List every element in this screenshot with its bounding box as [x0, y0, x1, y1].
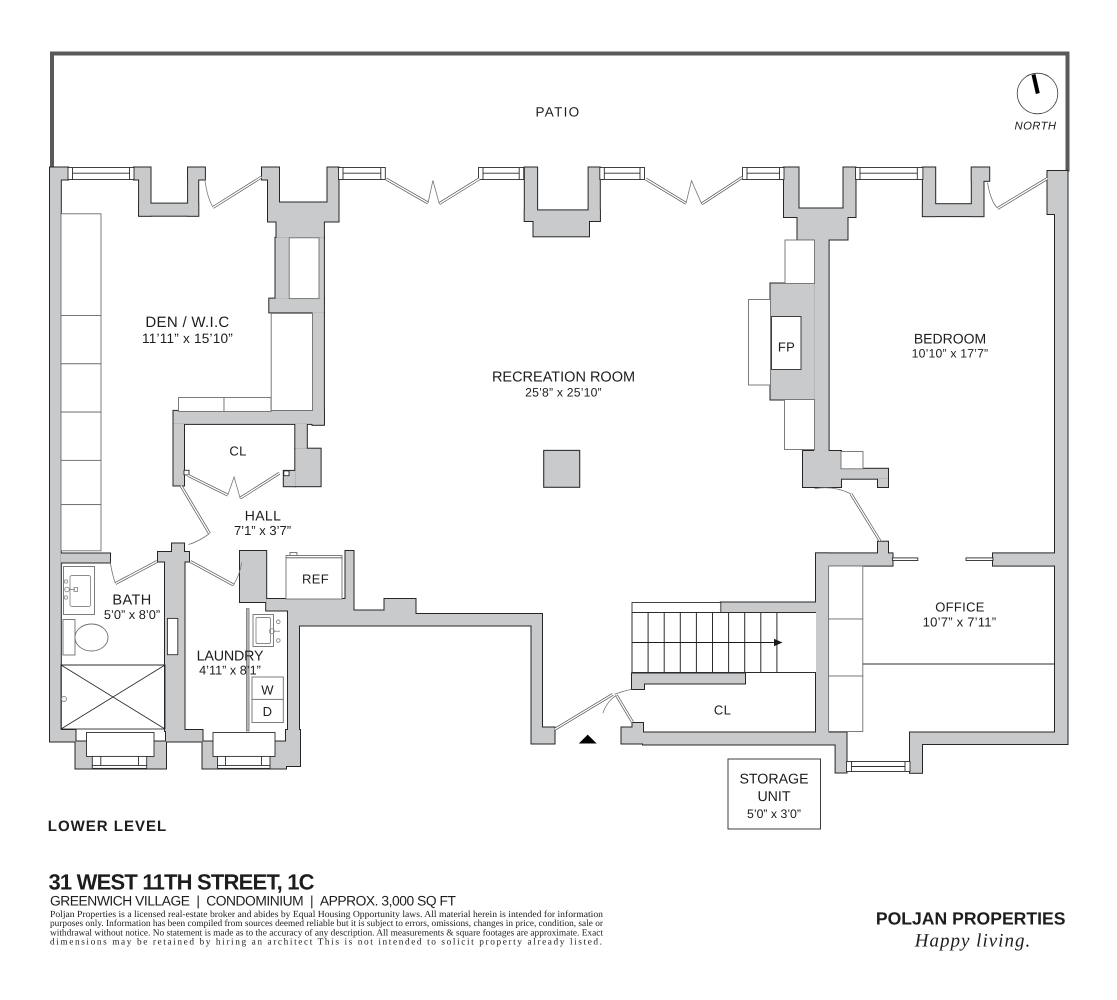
svg-text:BEDROOM: BEDROOM — [914, 331, 986, 347]
svg-text:STORAGE: STORAGE — [739, 772, 808, 788]
svg-text:5’0” x 8’0”: 5’0” x 8’0” — [104, 607, 160, 622]
svg-text:W: W — [261, 683, 274, 698]
svg-text:10’10” x 17’7”: 10’10” x 17’7” — [912, 347, 989, 361]
svg-text:Happy living.: Happy living. — [914, 931, 1031, 952]
svg-text:OFFICE: OFFICE — [935, 600, 984, 615]
svg-text:5’0” x 3’0”: 5’0” x 3’0” — [747, 807, 801, 821]
svg-text:POLJAN PROPERTIES: POLJAN PROPERTIES — [876, 909, 1066, 929]
svg-text:dimensions may be retained by: dimensions may be retained by hiring an … — [50, 938, 602, 948]
svg-text:10’7” x 7’11”: 10’7” x 7’11” — [923, 615, 997, 630]
svg-text:LOWER LEVEL: LOWER LEVEL — [48, 818, 167, 835]
svg-text:DEN / W.I.C: DEN / W.I.C — [145, 314, 229, 331]
svg-text:4’11” x 8’1”: 4’11” x 8’1” — [199, 664, 261, 678]
svg-text:FP: FP — [778, 340, 795, 355]
svg-text:D: D — [263, 704, 273, 719]
svg-text:REF: REF — [302, 572, 329, 587]
svg-text:HALL: HALL — [245, 508, 282, 524]
svg-text:11’11” x 15’10”: 11’11” x 15’10” — [142, 331, 233, 346]
svg-text:PATIO: PATIO — [535, 105, 580, 120]
svg-text:RECREATION ROOM: RECREATION ROOM — [492, 370, 635, 386]
svg-text:LAUNDRY: LAUNDRY — [197, 649, 264, 665]
svg-text:NORTH: NORTH — [1015, 121, 1057, 133]
svg-text:GREENWICH VILLAGE | CONDOMIN: GREENWICH VILLAGE | CONDOMINIUM | APPROX… — [50, 894, 456, 909]
svg-text:CL: CL — [714, 703, 731, 718]
svg-text:31 WEST 11TH STREET, 1C: 31 WEST 11TH STREET, 1C — [49, 870, 315, 895]
svg-text:CL: CL — [229, 444, 246, 459]
svg-text:7’1” x 3’7”: 7’1” x 3’7” — [234, 523, 291, 538]
svg-text:UNIT: UNIT — [757, 789, 790, 805]
svg-text:25’8” x 25’10”: 25’8” x 25’10” — [525, 386, 602, 400]
